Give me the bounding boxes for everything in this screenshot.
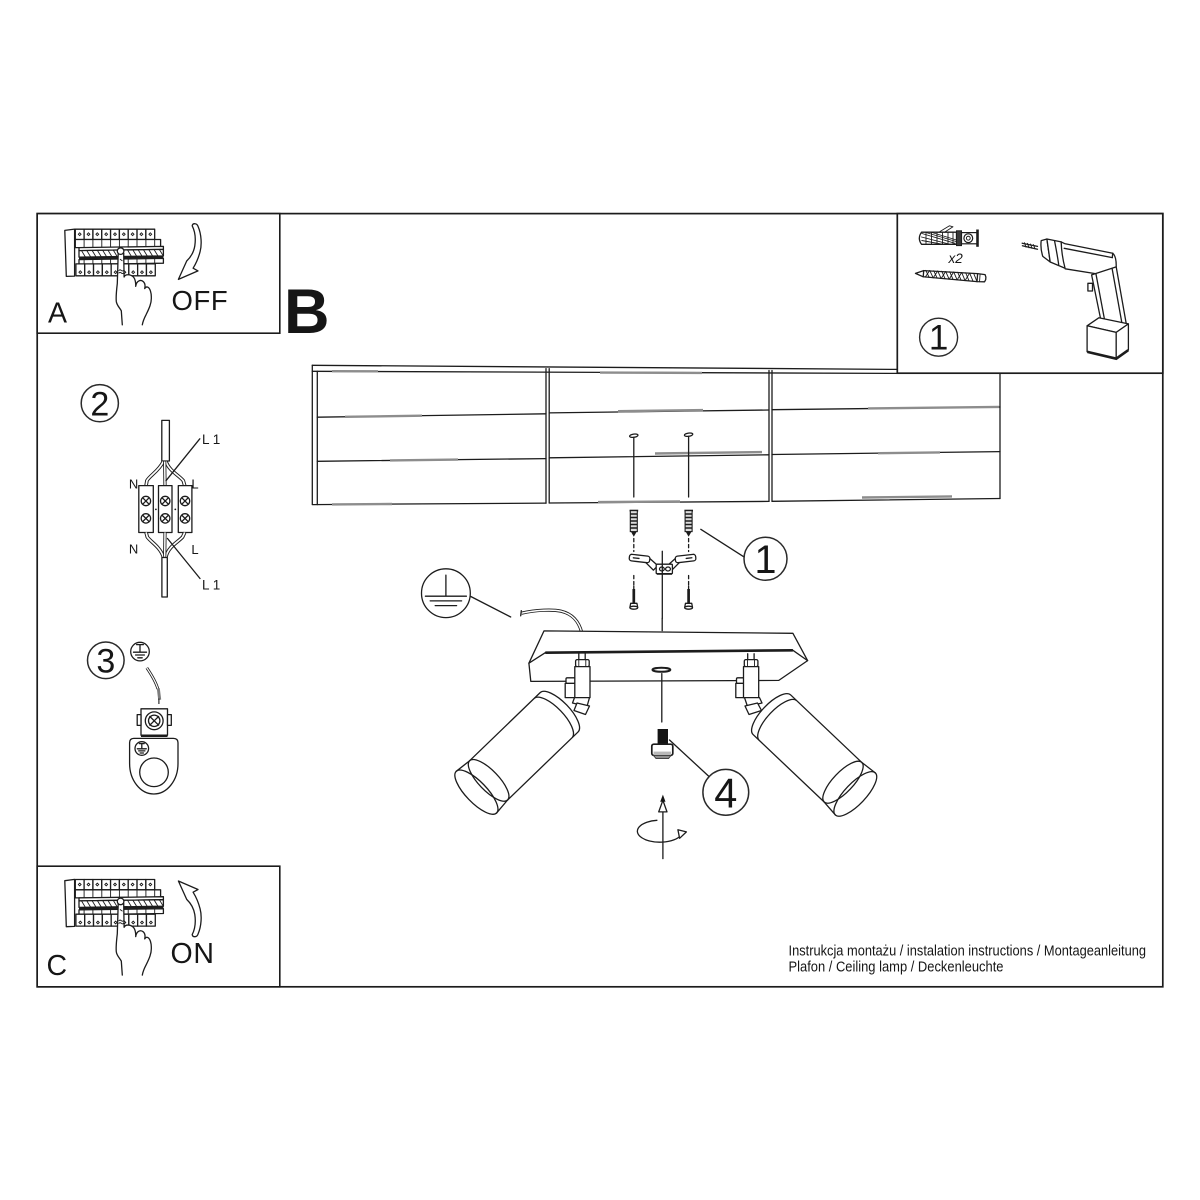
svg-text:C: C	[47, 950, 68, 982]
svg-text:L: L	[191, 477, 198, 492]
svg-text:1: 1	[755, 538, 777, 582]
svg-text:A: A	[48, 298, 67, 330]
svg-text:L: L	[191, 542, 198, 557]
svg-text:B: B	[284, 277, 330, 347]
svg-text:4: 4	[714, 769, 737, 816]
svg-text:L 1: L 1	[202, 432, 220, 447]
svg-text:Plafon / Ceiling lamp / Decken: Plafon / Ceiling lamp / Deckenleuchte	[789, 959, 1004, 976]
svg-text:x2: x2	[948, 251, 964, 266]
svg-text:2: 2	[90, 386, 109, 424]
svg-text:L 1: L 1	[202, 578, 220, 593]
svg-text:Instrukcja montażu / instalati: Instrukcja montażu / instalation instruc…	[789, 943, 1147, 960]
svg-text:3: 3	[96, 643, 115, 681]
svg-text:N: N	[129, 477, 138, 492]
svg-text:OFF: OFF	[172, 285, 229, 316]
svg-text:N: N	[129, 542, 138, 557]
svg-text:1: 1	[929, 319, 948, 358]
svg-text:ON: ON	[171, 938, 215, 970]
